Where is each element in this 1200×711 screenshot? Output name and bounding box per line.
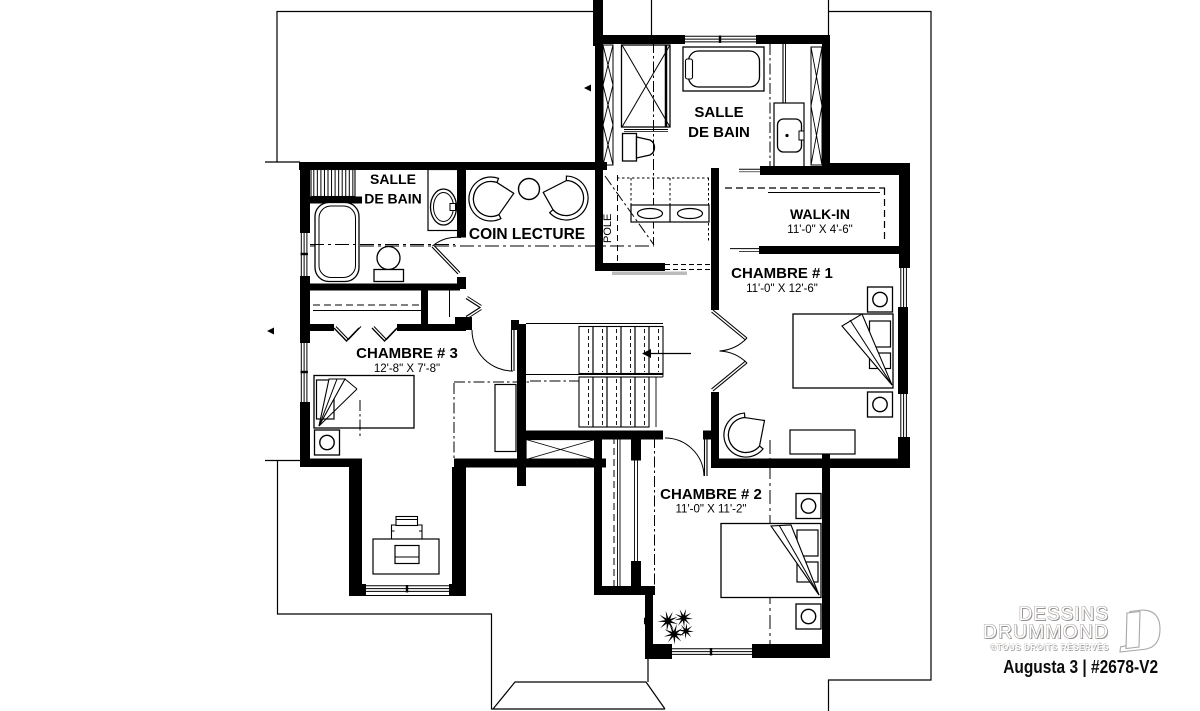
svg-text:CHAMBRE # 3: CHAMBRE # 3 (356, 345, 458, 362)
svg-text:WALK-IN: WALK-IN (790, 206, 850, 222)
svg-text:SALLE: SALLE (370, 171, 416, 187)
svg-text:CHAMBRE # 2: CHAMBRE # 2 (660, 486, 762, 503)
svg-text:DE BAIN: DE BAIN (688, 124, 750, 141)
svg-text:12'-8" X 7'-8": 12'-8" X 7'-8" (374, 363, 440, 375)
svg-text:DE BAIN: DE BAIN (364, 191, 422, 207)
svg-text:CHAMBRE # 1: CHAMBRE # 1 (731, 265, 833, 282)
svg-text:PÔLE: PÔLE (601, 214, 614, 243)
svg-text:COIN LECTURE: COIN LECTURE (469, 226, 585, 243)
svg-text:11'-0" X 12'-6": 11'-0" X 12'-6" (746, 283, 818, 295)
svg-text:11'-0" X 11'-2": 11'-0" X 11'-2" (676, 504, 747, 516)
svg-text:SALLE: SALLE (694, 104, 743, 121)
svg-text:11'-0" X 4'-6": 11'-0" X 4'-6" (787, 224, 852, 236)
